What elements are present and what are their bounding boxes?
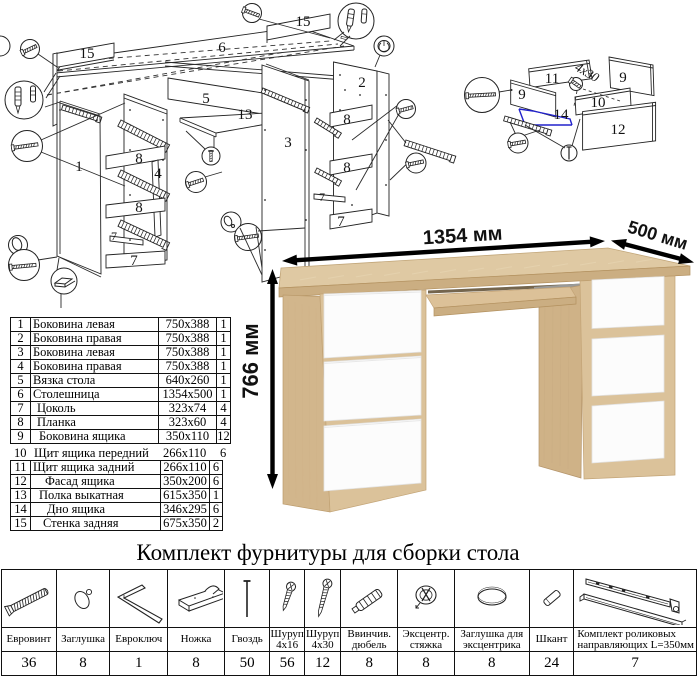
svg-text:11: 11: [545, 71, 559, 87]
svg-text:766 мм: 766 мм: [238, 323, 263, 398]
svg-text:8: 8: [135, 200, 143, 216]
svg-text:2: 2: [358, 75, 366, 91]
svg-text:8: 8: [343, 112, 351, 128]
svg-text:8: 8: [135, 151, 143, 167]
svg-text:15: 15: [296, 14, 311, 30]
svg-text:5: 5: [202, 91, 210, 107]
svg-text:12: 12: [611, 122, 626, 138]
svg-text:6: 6: [218, 40, 226, 56]
svg-text:13: 13: [238, 107, 253, 123]
svg-text:1354 мм: 1354 мм: [422, 223, 503, 250]
svg-text:15: 15: [80, 46, 95, 62]
svg-text:7: 7: [130, 253, 138, 269]
svg-text:4: 4: [154, 166, 162, 182]
svg-text:8: 8: [343, 160, 351, 176]
svg-text:7: 7: [111, 229, 117, 243]
svg-text:3: 3: [284, 135, 292, 151]
svg-text:7: 7: [337, 214, 345, 230]
svg-text:9: 9: [619, 70, 627, 86]
svg-text:7: 7: [319, 190, 325, 204]
svg-text:14: 14: [554, 107, 570, 123]
svg-text:9: 9: [518, 87, 526, 103]
